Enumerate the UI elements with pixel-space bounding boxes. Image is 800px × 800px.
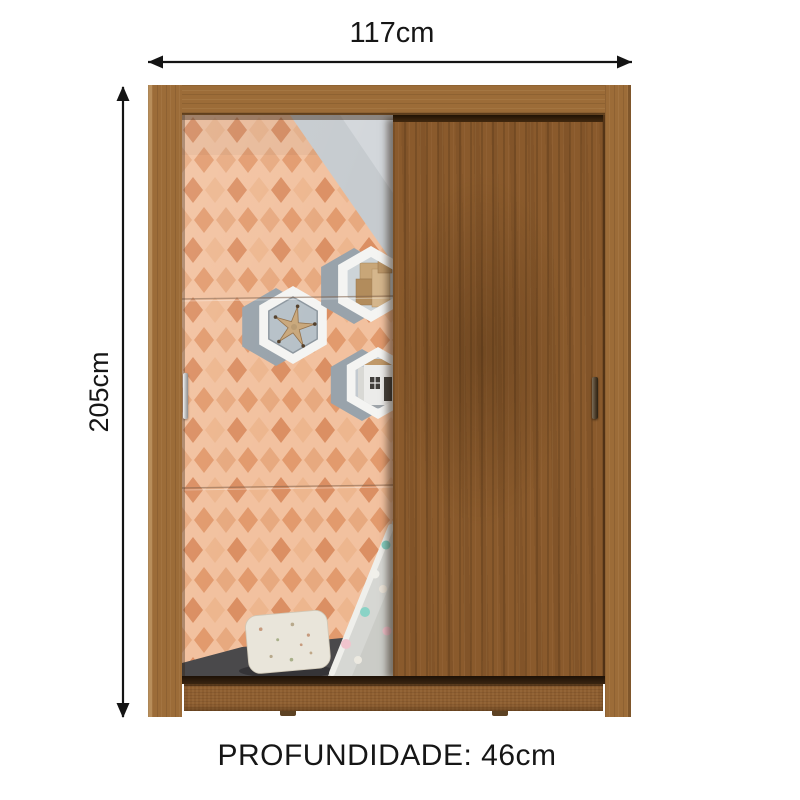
width-arrow-right-head-icon: [617, 56, 632, 69]
sliding-wood-door[interactable]: [393, 115, 605, 676]
depth-dimension-label: PROFUNDIDADE: 46cm: [0, 739, 774, 773]
wardrobe-right-side-panel: [605, 85, 631, 717]
wardrobe-foot: [280, 711, 296, 716]
wardrobe-base-plinth: [184, 684, 603, 711]
height-arrow-bottom-head-icon: [117, 703, 130, 718]
width-arrow-left-head-icon: [148, 56, 163, 69]
width-dimension-arrow: [140, 46, 644, 76]
door-top-gap-shadow: [393, 115, 603, 122]
mirror-reflection-scene: [182, 115, 393, 676]
mirror-glass-sheen: [182, 115, 393, 676]
door-bottom-track: [182, 676, 605, 684]
wardrobe: [148, 85, 631, 718]
wardrobe-foot: [492, 711, 508, 716]
height-arrow-top-head-icon: [117, 86, 130, 101]
wardrobe-top-rail: [148, 85, 631, 115]
mirror-door-handle[interactable]: [183, 373, 188, 419]
sliding-door-handle[interactable]: [592, 377, 598, 419]
height-dimension-arrow: [109, 80, 139, 724]
wardrobe-left-side-panel: [148, 85, 182, 717]
mirror-door: [182, 115, 393, 676]
